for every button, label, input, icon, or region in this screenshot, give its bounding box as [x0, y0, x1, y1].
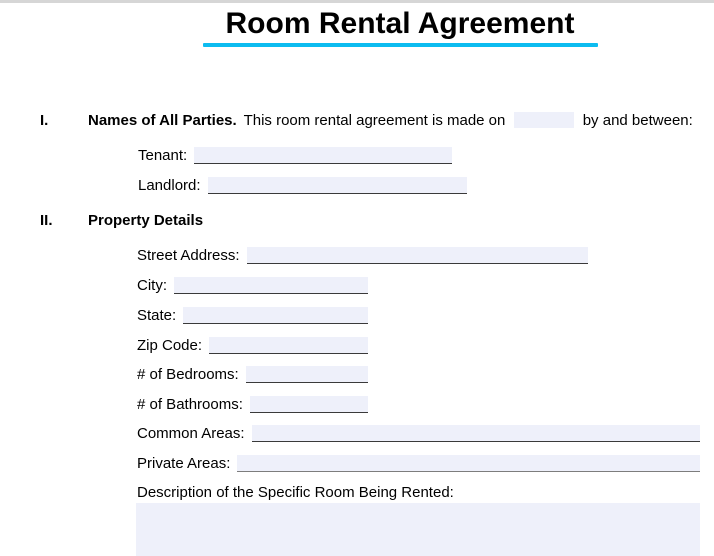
- common-areas-label: Common Areas:: [137, 425, 252, 442]
- tenant-label: Tenant:: [138, 147, 194, 164]
- landlord-row: Landlord:: [138, 177, 467, 194]
- landlord-field[interactable]: [208, 177, 467, 194]
- street-address-field[interactable]: [247, 247, 588, 264]
- private-areas-label: Private Areas:: [137, 455, 237, 472]
- state-field[interactable]: [183, 307, 368, 324]
- private-areas-row: Private Areas:: [137, 455, 700, 472]
- state-label: State:: [137, 307, 183, 324]
- tenant-row: Tenant:: [138, 147, 452, 164]
- city-label: City:: [137, 277, 174, 294]
- room-description-label: Description of the Specific Room Being R…: [137, 484, 454, 502]
- bedrooms-row: # of Bedrooms:: [137, 366, 368, 383]
- bathrooms-row: # of Bathrooms:: [137, 396, 368, 413]
- bedrooms-label: # of Bedrooms:: [137, 366, 246, 383]
- section-1-intro-line: Names of All Parties. This room rental a…: [88, 112, 693, 130]
- zip-code-label: Zip Code:: [137, 337, 209, 354]
- common-areas-row: Common Areas:: [137, 425, 700, 442]
- zip-code-row: Zip Code:: [137, 337, 368, 354]
- city-field[interactable]: [174, 277, 368, 294]
- bedrooms-field[interactable]: [246, 366, 368, 383]
- section-2-heading: Property Details: [88, 212, 203, 230]
- state-row: State:: [137, 307, 368, 324]
- top-divider: [0, 0, 714, 3]
- page-title: Room Rental Agreement: [86, 7, 714, 41]
- section-1-intro-after: by and between:: [583, 112, 693, 129]
- tenant-field[interactable]: [194, 147, 452, 164]
- street-address-label: Street Address:: [137, 247, 247, 264]
- room-description-field[interactable]: [136, 503, 700, 556]
- section-1-heading: Names of All Parties.: [88, 112, 237, 129]
- bathrooms-field[interactable]: [250, 396, 368, 413]
- street-address-row: Street Address:: [137, 247, 588, 264]
- zip-code-field[interactable]: [209, 337, 368, 354]
- private-areas-field[interactable]: [237, 455, 700, 472]
- section-1-numeral: I.: [40, 112, 48, 130]
- section-2-numeral: II.: [40, 212, 53, 230]
- landlord-label: Landlord:: [138, 177, 208, 194]
- bathrooms-label: # of Bathrooms:: [137, 396, 250, 413]
- title-accent-underline: [203, 43, 598, 47]
- room-rental-agreement-page: Room Rental Agreement I. Names of All Pa…: [0, 0, 714, 556]
- section-1-intro-before: This room rental agreement is made on: [244, 112, 506, 129]
- common-areas-field[interactable]: [252, 425, 700, 442]
- city-row: City:: [137, 277, 368, 294]
- agreement-date-field[interactable]: [514, 112, 574, 128]
